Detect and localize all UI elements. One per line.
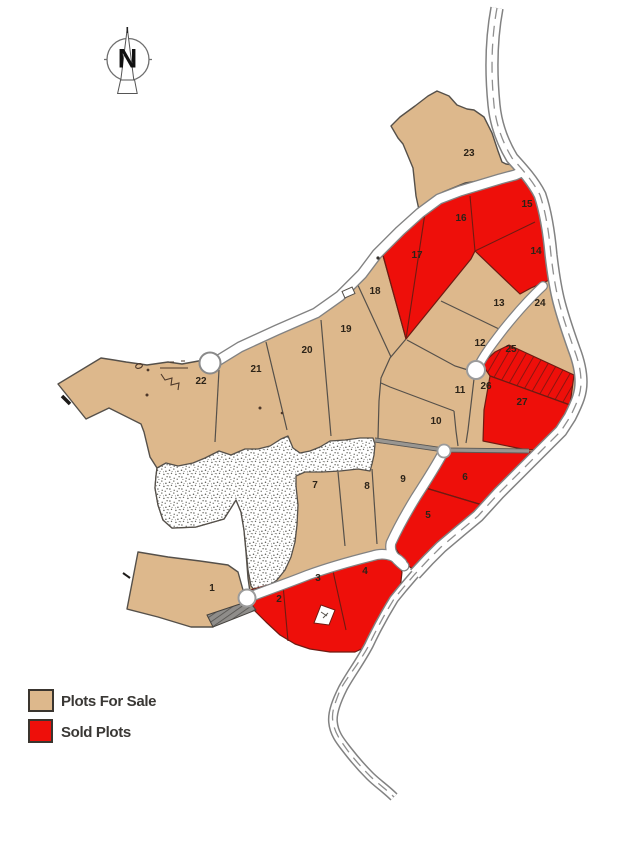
svg-text:25: 25 bbox=[505, 344, 517, 355]
svg-text:14: 14 bbox=[530, 246, 542, 257]
svg-text:4: 4 bbox=[362, 566, 368, 577]
svg-text:27: 27 bbox=[516, 397, 528, 408]
svg-text:19: 19 bbox=[340, 324, 352, 335]
svg-text:23: 23 bbox=[463, 148, 475, 159]
svg-text:9: 9 bbox=[400, 474, 406, 485]
svg-text:13: 13 bbox=[493, 298, 505, 309]
svg-text:5: 5 bbox=[425, 510, 431, 521]
svg-text:Plots For Sale: Plots For Sale bbox=[61, 693, 156, 710]
svg-text:26: 26 bbox=[480, 381, 492, 392]
svg-text:15: 15 bbox=[521, 199, 533, 210]
svg-text:8: 8 bbox=[364, 481, 370, 492]
svg-text:N: N bbox=[118, 44, 138, 74]
svg-text:16: 16 bbox=[455, 213, 467, 224]
svg-text:7: 7 bbox=[312, 480, 318, 491]
svg-text:21: 21 bbox=[250, 364, 262, 375]
svg-text:Sold Plots: Sold Plots bbox=[61, 724, 131, 741]
svg-text:11: 11 bbox=[455, 385, 466, 396]
svg-text:22: 22 bbox=[195, 376, 207, 387]
svg-text:10: 10 bbox=[430, 416, 442, 427]
svg-text:6: 6 bbox=[462, 472, 468, 483]
svg-text:1: 1 bbox=[209, 583, 215, 594]
svg-text:12: 12 bbox=[474, 338, 486, 349]
svg-text:20: 20 bbox=[301, 345, 313, 356]
svg-text:17: 17 bbox=[411, 250, 423, 261]
svg-text:2: 2 bbox=[276, 594, 282, 605]
svg-text:24: 24 bbox=[534, 298, 546, 309]
svg-text:18: 18 bbox=[369, 286, 381, 297]
svg-text:3: 3 bbox=[315, 573, 321, 584]
